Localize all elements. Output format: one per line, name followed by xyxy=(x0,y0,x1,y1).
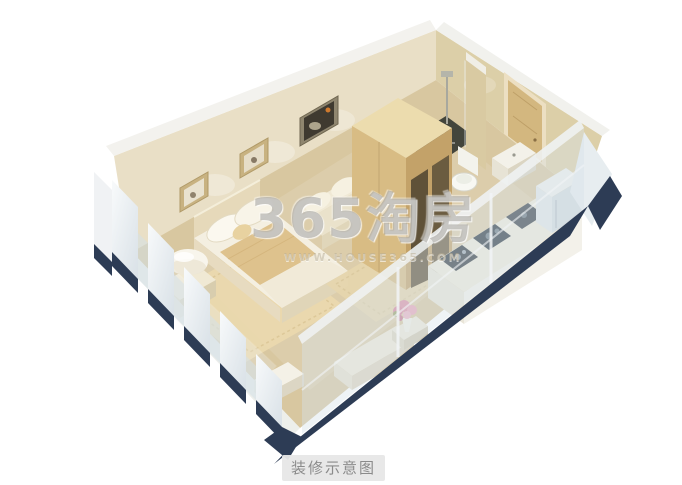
partition-wall xyxy=(466,52,486,170)
shower-head xyxy=(441,71,453,77)
render-caption-label: 装修示意图 xyxy=(282,455,385,481)
apartment-3d-render xyxy=(0,0,682,485)
left-corner-block xyxy=(94,172,112,276)
floorplan-render-page: 365淘房 WWW.HOUSE365.COM 装修示意图 xyxy=(0,0,682,485)
door-knob xyxy=(533,138,536,141)
faucet xyxy=(512,153,515,156)
